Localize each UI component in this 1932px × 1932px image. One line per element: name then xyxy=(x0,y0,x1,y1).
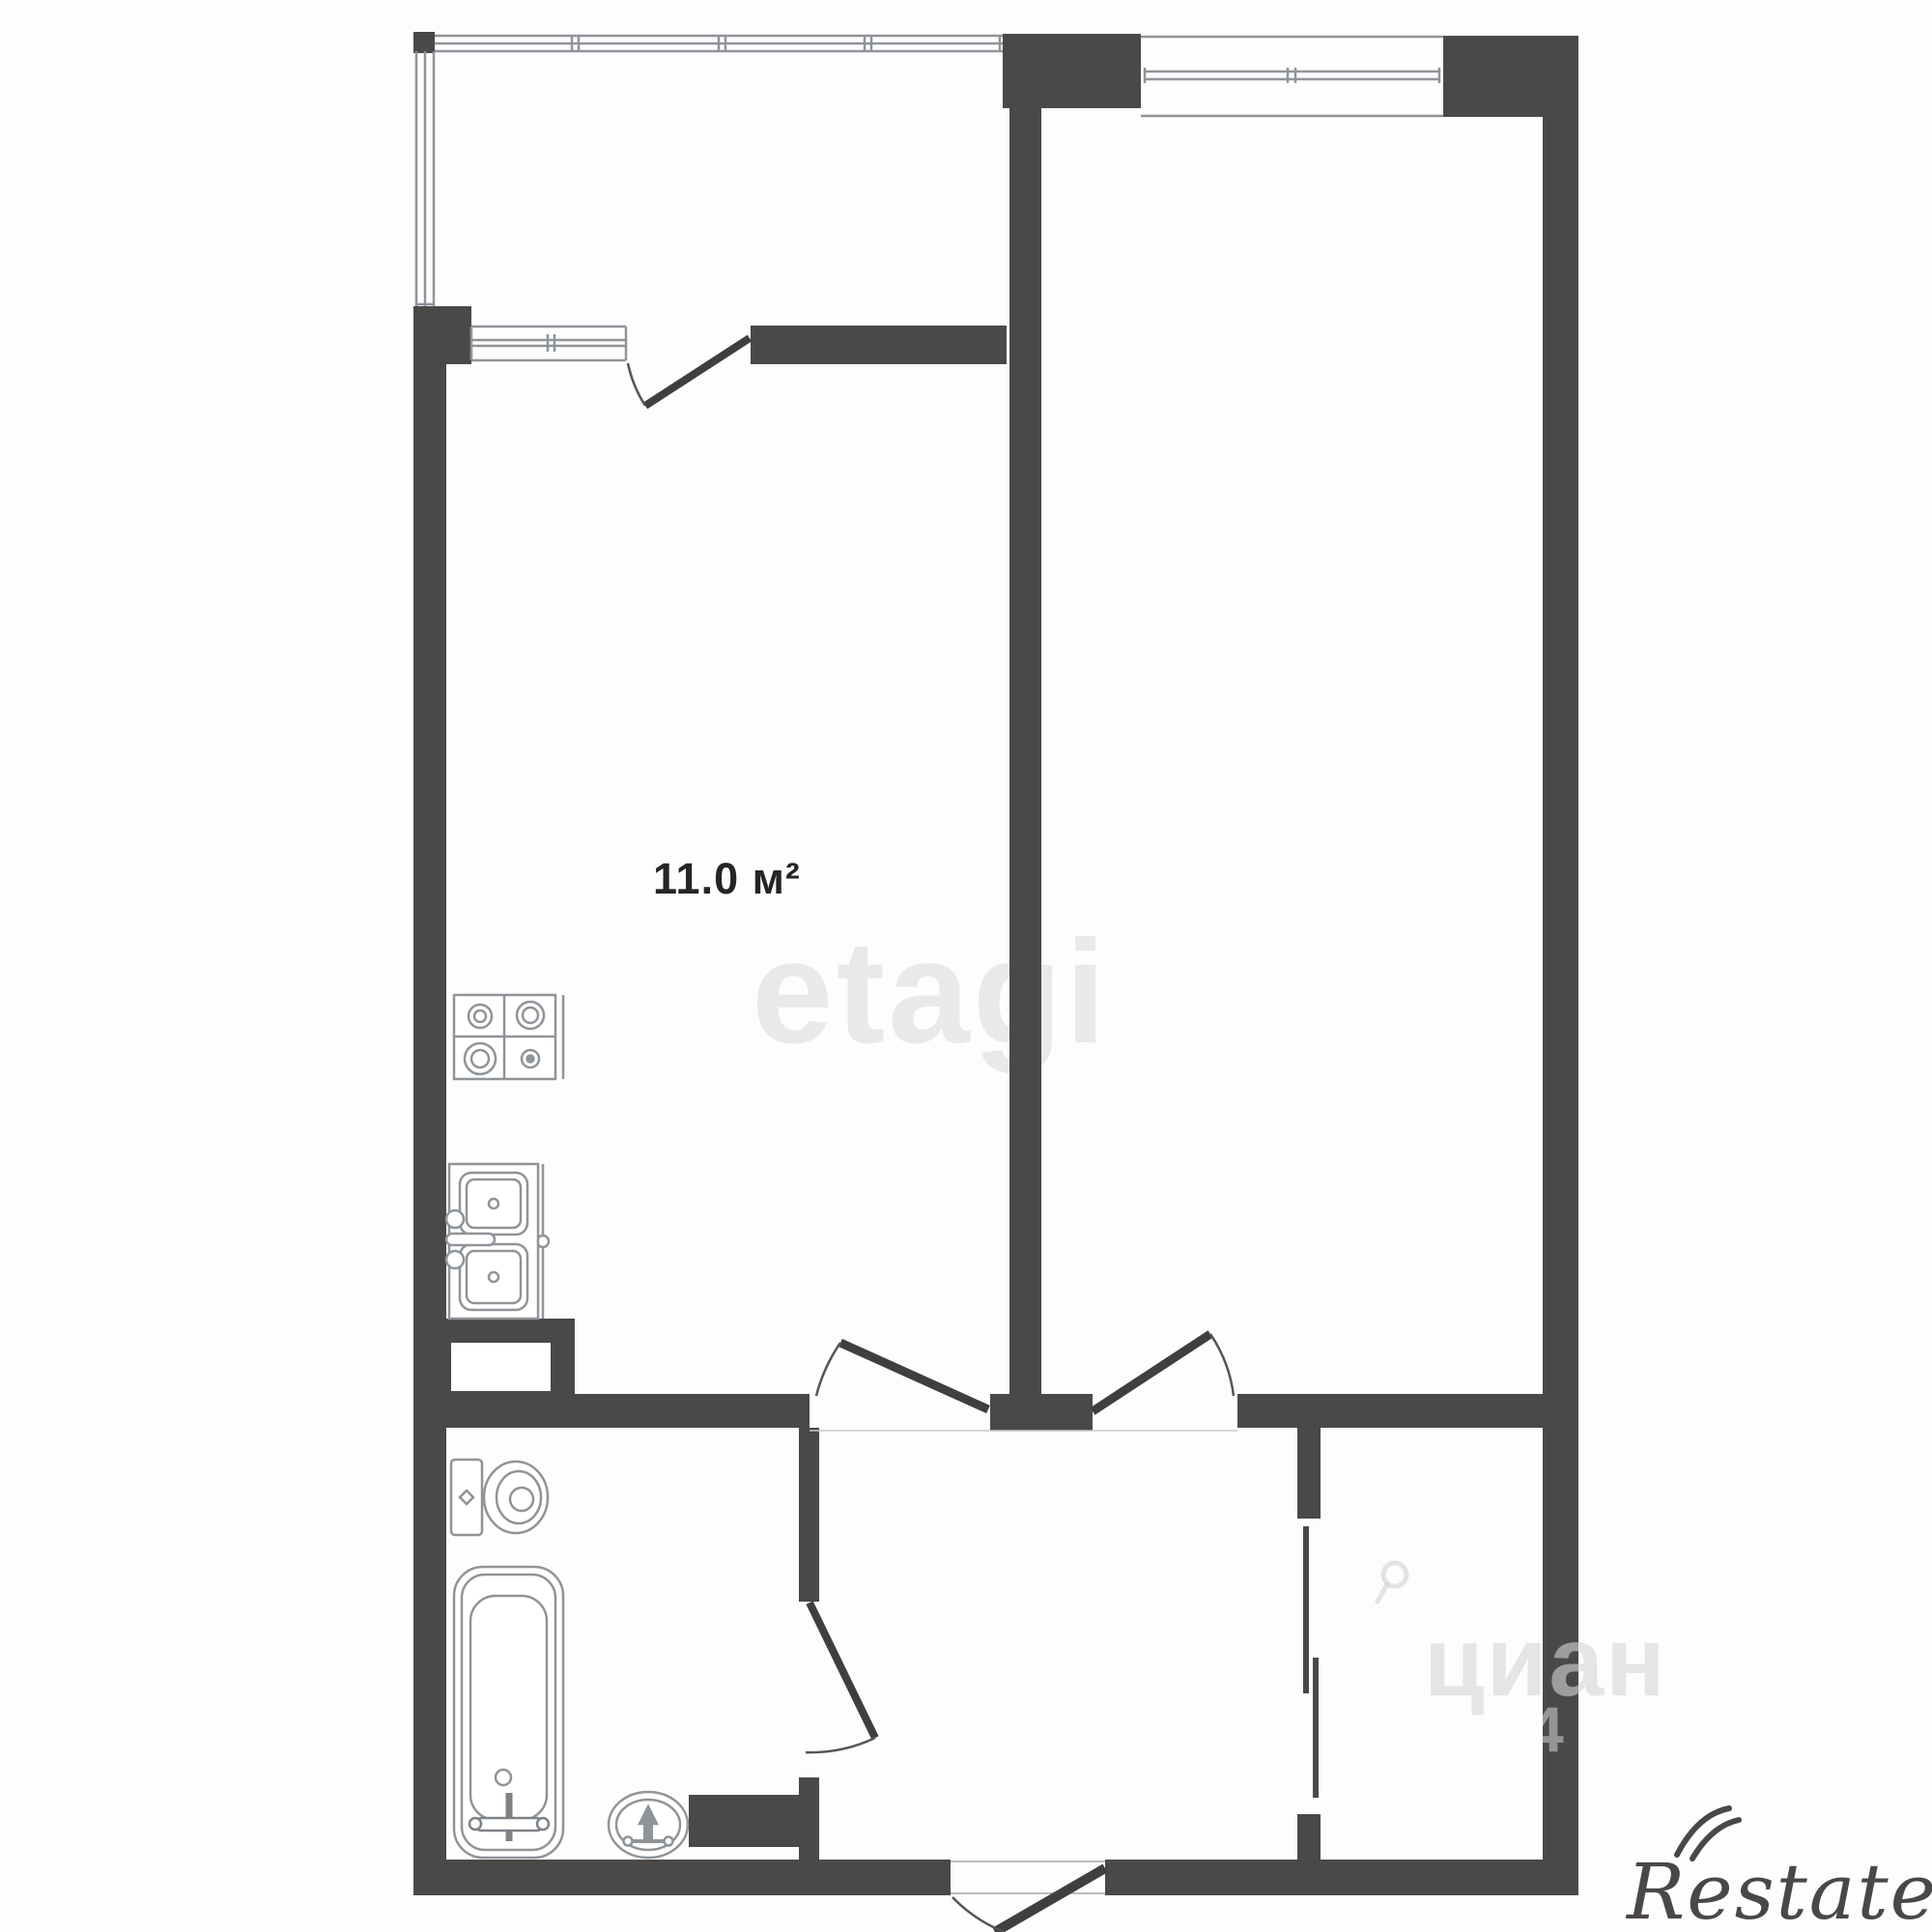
wall-kitchen-top xyxy=(751,326,1007,364)
wall-bottom-right xyxy=(1105,1860,1578,1895)
floor-plan: etagi xyxy=(0,0,1932,1932)
windows xyxy=(415,35,1443,1893)
restate-watermark: Restate xyxy=(1627,1847,1932,1932)
kitchen-window xyxy=(471,327,626,360)
bathtub-icon xyxy=(454,1567,563,1858)
stove-icon xyxy=(454,995,555,1079)
kitchen-area-label: 11.0 м² xyxy=(653,854,801,904)
entrance-door xyxy=(952,1868,1105,1932)
balcony-window-top xyxy=(435,35,1003,52)
cian-watermark-number: 4 xyxy=(1528,1692,1564,1766)
washbasin-icon xyxy=(609,1792,688,1858)
bathroom-door xyxy=(806,1603,875,1752)
wall-bath-hall-lower xyxy=(799,1777,819,1860)
kitchen-sink-icon xyxy=(446,1164,538,1319)
wall-hall-pier xyxy=(990,1394,1093,1431)
wall-hall-top-right xyxy=(1237,1394,1543,1428)
sliding-door xyxy=(1306,1526,1316,1798)
wall-partition-top xyxy=(1297,1428,1321,1519)
doors xyxy=(628,338,1316,1932)
wall-kitchen-window-left-block xyxy=(413,306,471,364)
kitchen-duct-inset xyxy=(451,1343,551,1391)
wall-bath-hall-upper xyxy=(799,1428,819,1602)
wall-bottom-left xyxy=(413,1860,951,1895)
wall-left-outer xyxy=(413,306,446,1895)
balcony-window-left xyxy=(415,51,435,306)
living-door xyxy=(1093,1334,1234,1411)
wall-partition-bottom-stub xyxy=(1297,1814,1321,1860)
wall-top-mid-block xyxy=(1003,34,1141,108)
balcony-door xyxy=(628,338,750,406)
wall-hall-top-left xyxy=(413,1394,810,1428)
kitchen-door xyxy=(816,1343,988,1409)
wall-basin-stub xyxy=(689,1795,799,1847)
toilet-icon xyxy=(451,1460,548,1535)
living-window xyxy=(1141,37,1443,116)
wall-balcony-corner-square xyxy=(413,32,435,53)
wall-kitchen-living-divider xyxy=(1009,106,1041,1395)
